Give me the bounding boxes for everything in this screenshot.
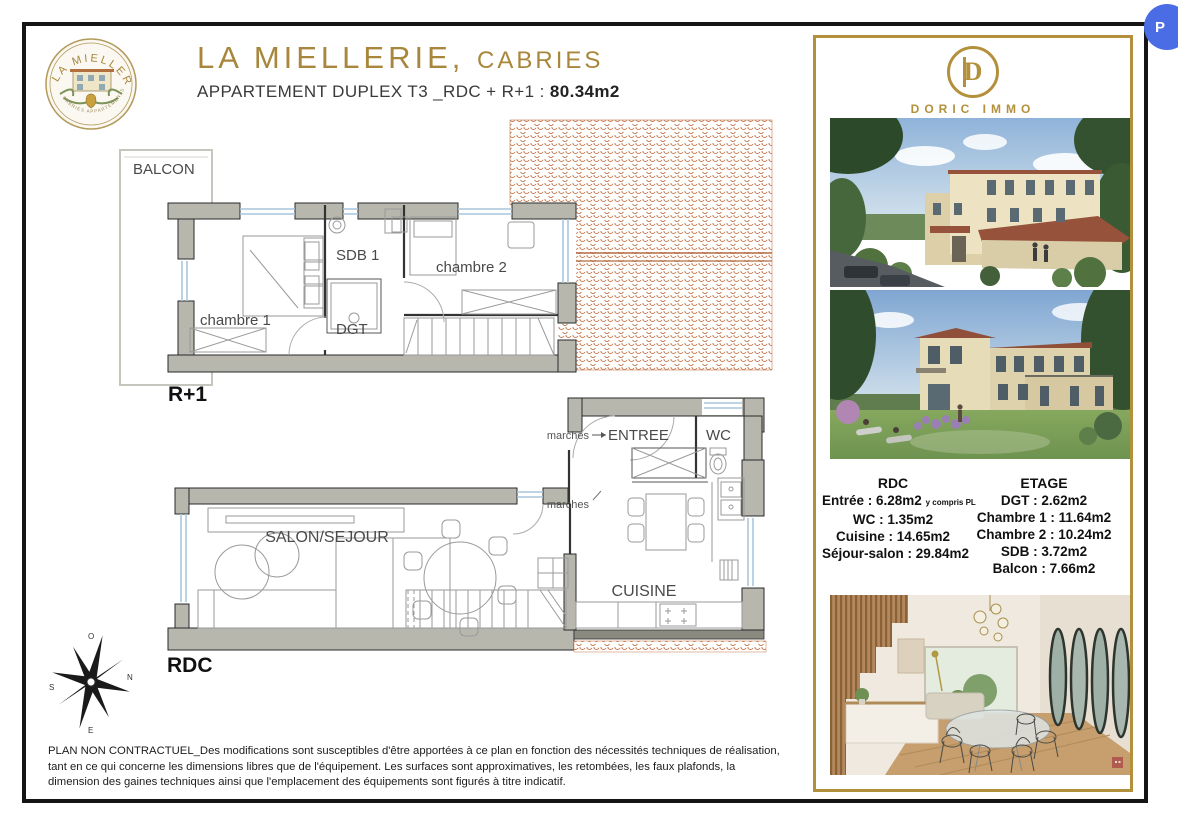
marches-arrow: [592, 432, 606, 438]
pinterest-save-overlay-button[interactable]: P: [1144, 4, 1178, 50]
surface-line: Chambre 1 : 11.64m2: [964, 509, 1124, 526]
agency-panel: D DORIC IMMO: [813, 35, 1133, 792]
label-dgt: DGT: [336, 321, 368, 338]
label-marches-top: marches: [547, 430, 590, 442]
label-floor-rdc: RDC: [167, 654, 213, 677]
dining-table: [404, 520, 516, 636]
surface-line: SDB : 3.72m2: [964, 543, 1124, 560]
exterior-render-garden: [830, 290, 1130, 459]
header-title-block: LA MIELLERIE, CABRIES APPARTEMENT DUPLEX…: [197, 40, 620, 102]
doric-brand-name: DORIC IMMO: [816, 102, 1130, 116]
disclaimer-line: PLAN NON CONTRACTUEL_Des modifications s…: [48, 744, 788, 760]
sideboard: [846, 703, 938, 743]
wall-art: [898, 639, 924, 673]
compass-rose: O N E S: [48, 630, 134, 734]
label-chambre2: chambre 2: [436, 259, 507, 276]
page-subtitle: APPARTEMENT DUPLEX T3 _RDC + R+1 : 80.34…: [197, 82, 620, 102]
surface-rdc-title: RDC: [822, 475, 964, 491]
title-name: LA MIELLERIE,: [197, 40, 464, 75]
surface-line: Chambre 2 : 10.24m2: [964, 526, 1124, 543]
surface-line: WC : 1.35m2: [822, 511, 964, 528]
label-sdb1: SDB 1: [336, 247, 379, 264]
surface-col-etage: ETAGE DGT : 2.62m2 Chambre 1 : 11.64m2 C…: [964, 475, 1124, 577]
doric-logo-mark: D: [947, 46, 999, 98]
label-cuisine: CUISINE: [612, 583, 677, 600]
render-watermark: [1112, 757, 1123, 768]
disclaimer-line: tant en ce qui concerne les dimensions l…: [48, 760, 788, 776]
kitchen-counter: [576, 478, 744, 628]
page-title: LA MIELLERIE, CABRIES: [197, 40, 620, 76]
title-city: CABRIES: [477, 47, 603, 74]
stairs-rdc: [406, 558, 568, 628]
rdc-roof-tile-strip: [574, 641, 766, 652]
surface-line: DGT : 2.62m2: [964, 492, 1124, 509]
building-render-1: [925, 170, 1130, 270]
label-wc: WC: [706, 427, 731, 444]
interior-render-dining: [830, 595, 1130, 775]
surface-etage-title: ETAGE: [964, 475, 1124, 491]
page: { "page": {"p_overlay": "P"}, "header": …: [0, 0, 1178, 833]
surface-line: Balcon : 7.66m2: [964, 560, 1124, 577]
label-salon: SALON/SEJOUR: [265, 529, 389, 546]
floor-plan-drawing: BALCON: [40, 110, 790, 735]
label-entree: ENTREE: [608, 427, 669, 444]
compass-east: E: [88, 726, 93, 734]
label-chambre1: chambre 1: [200, 312, 271, 329]
r1-plan: BALCON: [120, 120, 772, 406]
surface-line: Cuisine : 14.65m2: [822, 528, 964, 545]
entree-table-chairs: [628, 494, 704, 550]
label-balcon: BALCON: [133, 161, 195, 178]
surface-summary: RDC Entrée : 6.28m2 y compris PL WC : 1.…: [822, 475, 1124, 577]
exterior-render-street: [830, 118, 1130, 287]
label-marches-mid: marches: [547, 499, 590, 511]
disclaimer-line: dimension des gaines techniques ainsi qu…: [48, 775, 788, 791]
compass-west: O: [88, 632, 94, 641]
rdc-plan: ENTREE WC marches marches SALON/SEJOUR C…: [167, 398, 766, 677]
doric-immo-logo: D DORIC IMMO: [816, 46, 1130, 116]
surface-total: 80.34m2: [550, 82, 620, 101]
marches-tick: [593, 491, 601, 500]
toilet-wc: [710, 448, 726, 474]
disclaimer-text: PLAN NON CONTRACTUEL_Des modifications s…: [48, 744, 788, 791]
compass-south: S: [49, 683, 54, 692]
surface-line: Séjour-salon : 29.84m2: [822, 545, 964, 562]
surface-col-rdc: RDC Entrée : 6.28m2 y compris PL WC : 1.…: [822, 475, 964, 577]
label-floor-r1: R+1: [168, 383, 207, 406]
surface-line: Entrée : 6.28m2 y compris PL: [822, 492, 964, 511]
rdc-walls: [168, 398, 766, 652]
compass-north: N: [127, 673, 133, 682]
